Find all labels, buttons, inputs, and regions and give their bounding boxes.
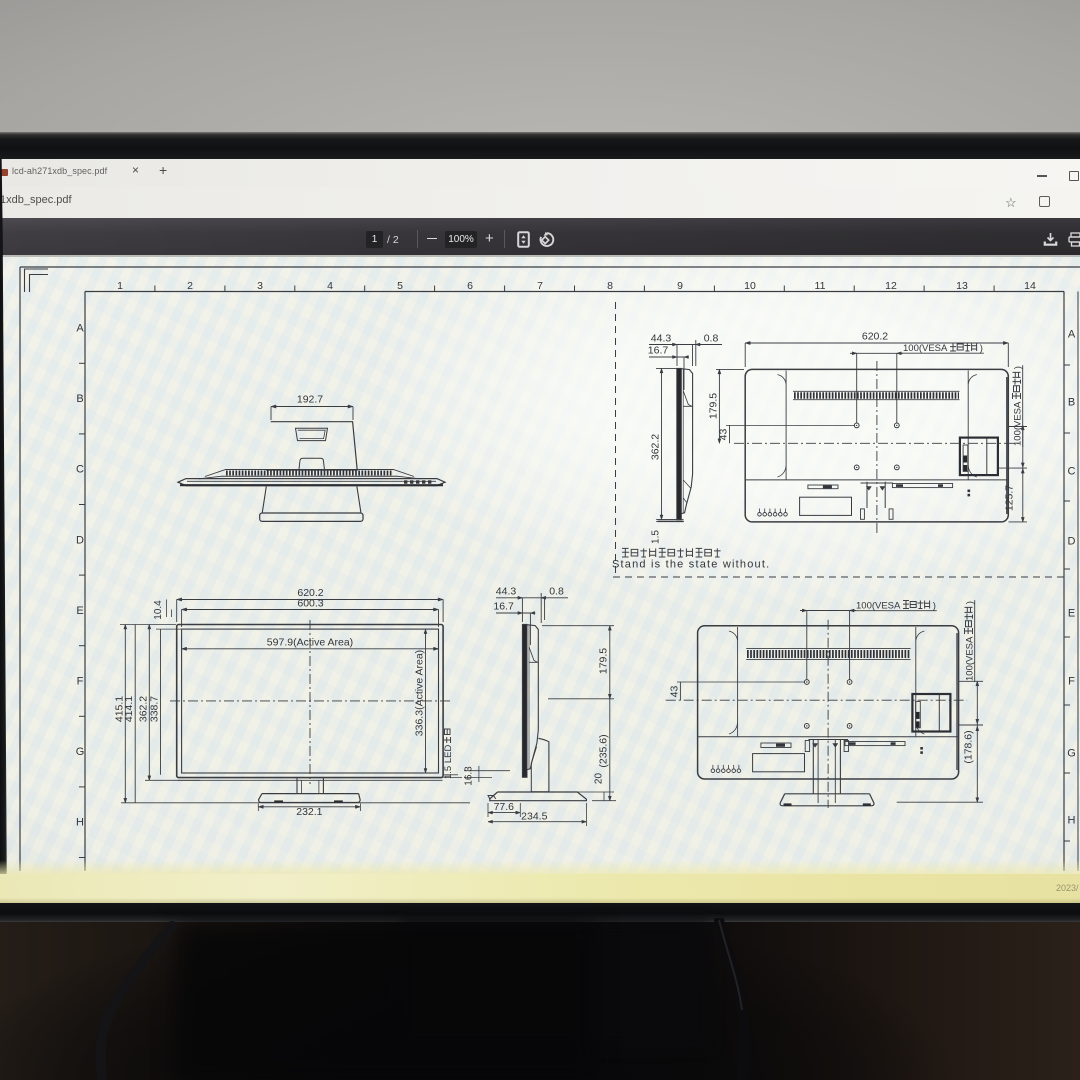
svg-text:G: G — [76, 746, 85, 758]
svg-text:D: D — [1068, 536, 1076, 548]
svg-text:H: H — [1068, 815, 1076, 827]
svg-text:232.1: 232.1 — [296, 806, 322, 818]
svg-text:600.3: 600.3 — [297, 597, 323, 609]
svg-text:A: A — [1068, 329, 1076, 341]
svg-text:16.7: 16.7 — [648, 345, 669, 357]
svg-text:B: B — [76, 393, 83, 405]
svg-text:336.3(Active Area): 336.3(Active Area) — [413, 650, 425, 736]
svg-text:16.7: 16.7 — [493, 601, 514, 613]
svg-text:1.5: 1.5 — [651, 530, 662, 544]
svg-text:E: E — [76, 605, 83, 617]
svg-text:9: 9 — [677, 280, 683, 292]
svg-text:43: 43 — [718, 429, 730, 441]
svg-text:F: F — [77, 676, 84, 688]
svg-text:362.2: 362.2 — [650, 434, 662, 460]
svg-text:10: 10 — [744, 280, 756, 292]
svg-text:C: C — [1068, 466, 1076, 478]
svg-text:Stand is the state without.: Stand is the state without. — [612, 559, 770, 571]
svg-text:13: 13 — [956, 280, 968, 292]
svg-text:43: 43 — [668, 686, 680, 698]
svg-text:192.7: 192.7 — [297, 394, 323, 406]
svg-text:G: G — [1067, 748, 1076, 760]
svg-text:E: E — [1068, 608, 1075, 620]
svg-text:): ) — [980, 343, 983, 354]
svg-text:0.8: 0.8 — [704, 333, 719, 345]
svg-text:179.5: 179.5 — [707, 393, 719, 419]
svg-text:): ) — [965, 601, 976, 604]
svg-text:4: 4 — [327, 280, 333, 292]
svg-text:414.1: 414.1 — [123, 696, 135, 722]
svg-text:597.9(Active Area): 597.9(Active Area) — [267, 637, 353, 649]
svg-text:(178.6): (178.6) — [963, 730, 975, 763]
svg-text:1.5 LED: 1.5 LED — [443, 745, 454, 779]
svg-text:1: 1 — [117, 280, 123, 292]
svg-text:0.8: 0.8 — [549, 585, 564, 597]
svg-text:100(VESA: 100(VESA — [856, 601, 901, 612]
svg-text:179.5: 179.5 — [598, 648, 610, 674]
svg-text:C: C — [76, 464, 84, 476]
svg-text:100(VESA: 100(VESA — [1013, 401, 1024, 446]
svg-text:234.5: 234.5 — [521, 810, 547, 822]
svg-text:125.7: 125.7 — [1004, 485, 1016, 511]
svg-text:D: D — [76, 534, 84, 546]
svg-text:6: 6 — [467, 280, 473, 292]
svg-text:H: H — [76, 817, 84, 829]
svg-text:14: 14 — [1024, 280, 1036, 292]
svg-text:12: 12 — [885, 280, 897, 292]
svg-text:F: F — [1068, 676, 1075, 688]
svg-text:3: 3 — [257, 280, 263, 292]
svg-text:): ) — [933, 601, 936, 612]
svg-text:100(VESA: 100(VESA — [903, 343, 948, 354]
svg-text:44.3: 44.3 — [496, 585, 517, 597]
svg-text:(235.6): (235.6) — [598, 734, 610, 767]
svg-text:7: 7 — [537, 280, 543, 292]
svg-text:2: 2 — [187, 280, 193, 292]
svg-text:338.7: 338.7 — [149, 696, 161, 722]
svg-text:11: 11 — [815, 280, 826, 292]
svg-text:16.3: 16.3 — [463, 766, 474, 786]
svg-text:B: B — [1068, 397, 1075, 409]
svg-text:10.4: 10.4 — [153, 600, 164, 620]
svg-text:620.2: 620.2 — [862, 331, 888, 343]
svg-text:A: A — [76, 323, 84, 335]
svg-text:5: 5 — [397, 280, 403, 292]
svg-text:8: 8 — [607, 280, 613, 292]
svg-text:44.3: 44.3 — [651, 333, 672, 345]
svg-text:20: 20 — [594, 773, 605, 785]
svg-text:362.2: 362.2 — [137, 696, 149, 722]
svg-text:): ) — [1013, 366, 1024, 369]
svg-text:77.6: 77.6 — [494, 801, 515, 813]
svg-text:100(VESA: 100(VESA — [965, 636, 976, 681]
